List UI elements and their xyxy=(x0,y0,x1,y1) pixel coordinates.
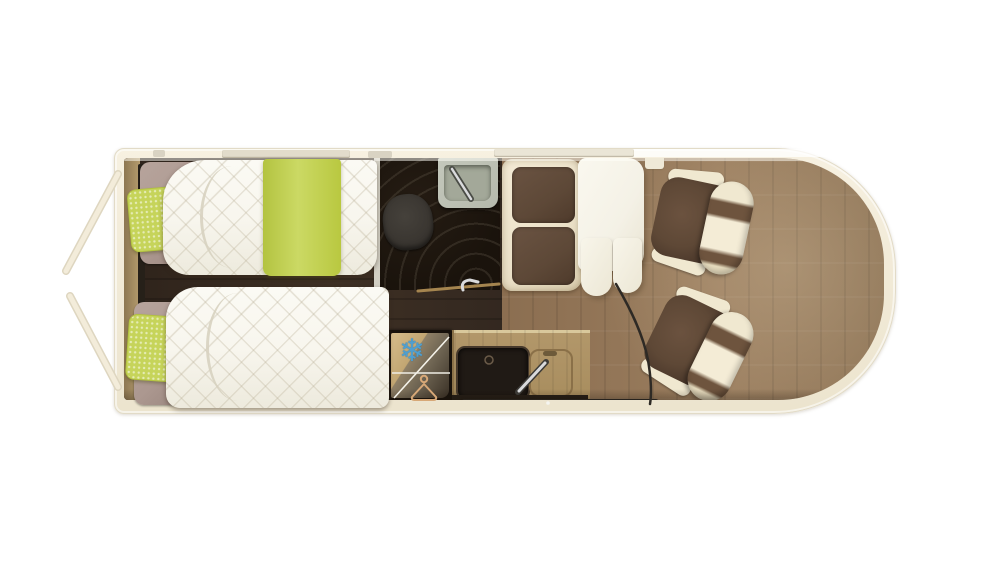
table-extension-right xyxy=(613,238,642,293)
interior: ❄ xyxy=(0,0,1000,563)
bench-cushion-bottom xyxy=(512,227,575,285)
swivel-seat-front xyxy=(646,167,759,279)
bench-cushion-top xyxy=(512,167,575,223)
table-extension-left xyxy=(581,238,612,296)
single-bed-bottom xyxy=(166,287,389,408)
wall-fitting xyxy=(368,151,392,158)
window-top-bedroom xyxy=(222,150,350,158)
duvet-fold xyxy=(206,293,269,401)
rear-door-open-top xyxy=(66,174,118,271)
washbasin-bowl xyxy=(444,165,491,201)
rear-door-open-bottom-face xyxy=(70,296,118,387)
rear-door-open-bottom xyxy=(70,296,118,387)
floorplan-canvas: ❄ xyxy=(0,0,1000,563)
bed-runner-green xyxy=(263,159,341,276)
wall-vent-tab xyxy=(645,158,664,169)
sink-drainer-slot xyxy=(543,351,557,356)
wall-fitting xyxy=(153,150,165,157)
window-top-dinette xyxy=(494,149,634,157)
duvet-fold xyxy=(200,166,263,268)
rear-door-open-top-face xyxy=(66,174,118,271)
snowflake-icon: ❄ xyxy=(392,331,432,371)
